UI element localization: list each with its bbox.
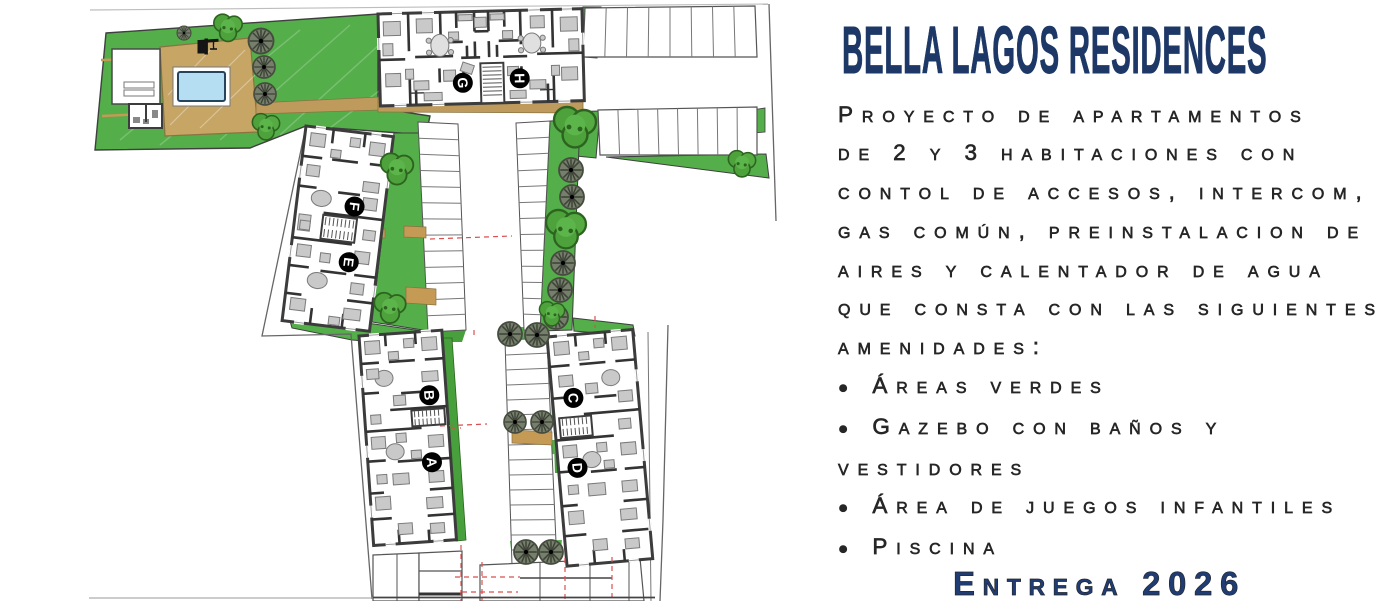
svg-text:D: D [569,462,586,473]
svg-text:H: H [512,73,528,84]
svg-text:C: C [565,392,582,403]
svg-text:B: B [421,390,438,401]
svg-text:E: E [340,257,357,268]
svg-text:G: G [455,77,471,88]
svg-text:A: A [424,457,441,468]
